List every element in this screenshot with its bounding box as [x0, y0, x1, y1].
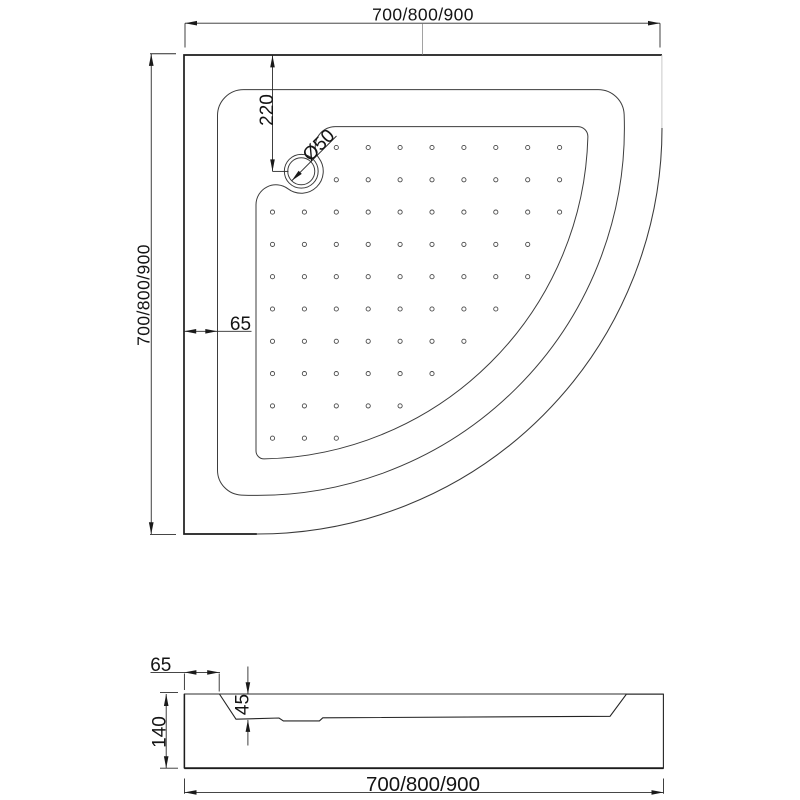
svg-text:65: 65 [230, 314, 251, 335]
svg-text:220: 220 [257, 94, 278, 126]
svg-text:140: 140 [150, 716, 171, 748]
svg-text:700/800/900: 700/800/900 [134, 244, 154, 346]
svg-text:65: 65 [150, 655, 171, 676]
svg-text:700/800/900: 700/800/900 [366, 773, 480, 796]
svg-text:700/800/900: 700/800/900 [372, 5, 474, 25]
svg-text:45: 45 [233, 694, 254, 715]
